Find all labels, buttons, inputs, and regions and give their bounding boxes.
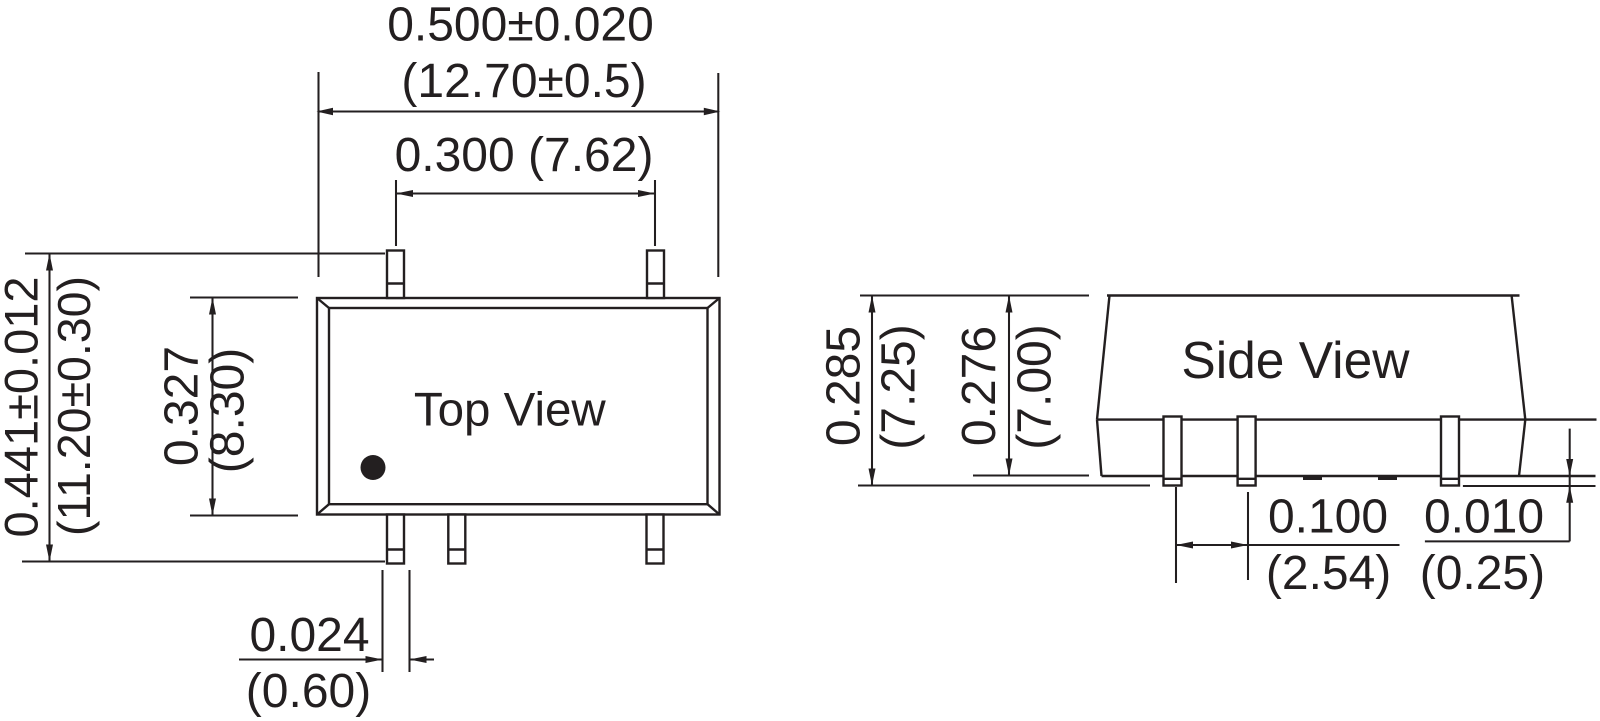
- svg-text:0.441±0.012: 0.441±0.012: [0, 276, 48, 537]
- svg-text:(11.20±0.30): (11.20±0.30): [48, 276, 100, 536]
- svg-text:0.500±0.020: 0.500±0.020: [387, 0, 654, 52]
- svg-text:0.010: 0.010: [1424, 491, 1544, 544]
- svg-text:0.300 (7.62): 0.300 (7.62): [395, 129, 654, 182]
- svg-text:0.276: 0.276: [953, 326, 1006, 446]
- svg-text:(8.30): (8.30): [202, 348, 255, 473]
- svg-text:0.024: 0.024: [249, 609, 369, 662]
- svg-text:(0.60): (0.60): [246, 665, 371, 718]
- svg-text:(12.70±0.5): (12.70±0.5): [401, 55, 646, 108]
- svg-text:0.285: 0.285: [818, 326, 871, 446]
- svg-text:(0.25): (0.25): [1420, 547, 1545, 600]
- svg-text:Side View: Side View: [1181, 331, 1410, 389]
- svg-text:Top View: Top View: [414, 384, 607, 437]
- svg-text:(2.54): (2.54): [1266, 547, 1391, 600]
- svg-text:(7.00): (7.00): [1009, 324, 1062, 449]
- svg-text:(7.25): (7.25): [873, 324, 926, 449]
- svg-text:0.100: 0.100: [1268, 491, 1388, 544]
